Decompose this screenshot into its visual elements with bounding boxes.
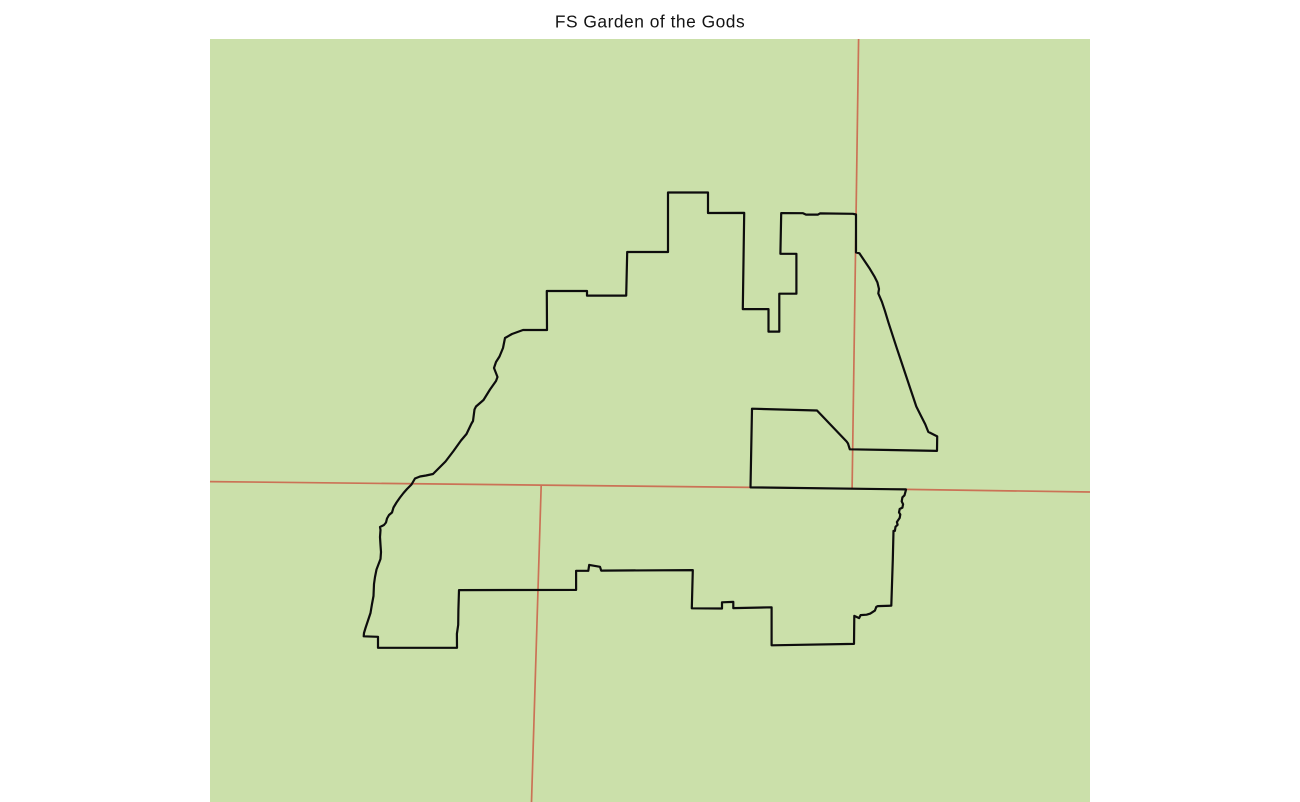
svg-text:FS Garden of the Gods: FS Garden of the Gods [555, 12, 745, 32]
